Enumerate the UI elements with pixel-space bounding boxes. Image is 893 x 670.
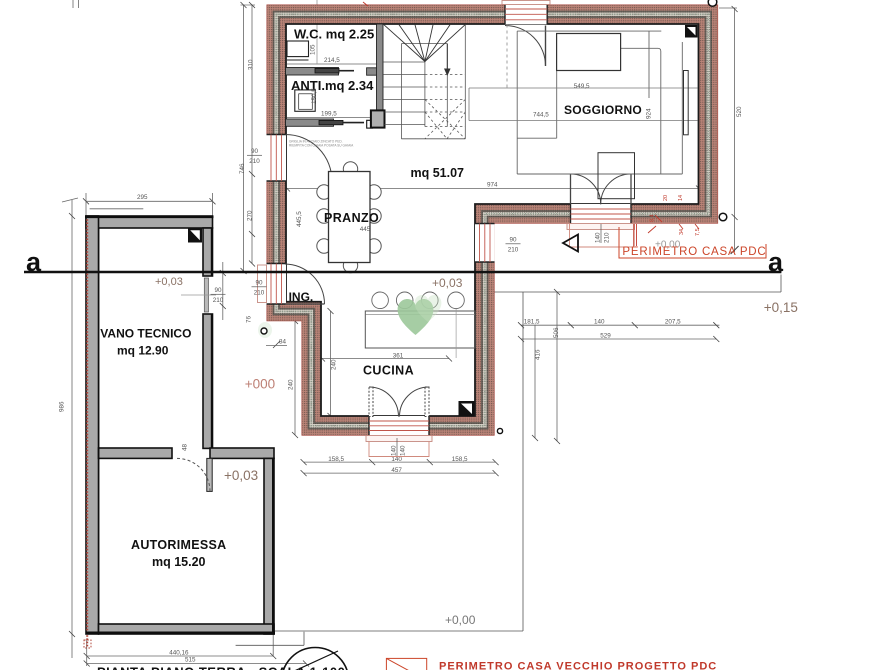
svg-text:7,5: 7,5 — [695, 228, 701, 236]
svg-text:744,5: 744,5 — [533, 111, 549, 118]
svg-text:974: 974 — [487, 182, 498, 189]
svg-text:520: 520 — [736, 106, 743, 117]
svg-text:199,5: 199,5 — [321, 111, 337, 118]
svg-text:158,5: 158,5 — [328, 456, 344, 463]
svg-text:140: 140 — [595, 232, 602, 243]
svg-text:210: 210 — [508, 247, 519, 254]
svg-text:140: 140 — [391, 445, 398, 456]
svg-text:445: 445 — [360, 226, 371, 233]
svg-text:240: 240 — [288, 379, 295, 390]
svg-text:457: 457 — [391, 467, 402, 474]
svg-text:34: 34 — [679, 229, 685, 235]
svg-text:924: 924 — [646, 108, 653, 119]
svg-text:PRANZO: PRANZO — [324, 211, 379, 225]
svg-text:986: 986 — [59, 401, 66, 412]
svg-text:210: 210 — [249, 158, 260, 165]
svg-text:+0,03: +0,03 — [432, 276, 463, 290]
svg-text:90: 90 — [251, 148, 259, 155]
svg-text:207,5: 207,5 — [665, 319, 681, 326]
svg-text:AUTORIMESSA: AUTORIMESSA — [131, 538, 226, 552]
svg-text:150,5: 150,5 — [311, 88, 318, 104]
svg-text:W.C. mq 2.25: W.C. mq 2.25 — [294, 27, 374, 42]
svg-text:48: 48 — [182, 443, 189, 451]
svg-text:140: 140 — [594, 319, 605, 326]
svg-text:746: 746 — [239, 163, 246, 174]
svg-text:+0,03: +0,03 — [155, 276, 183, 288]
svg-text:CUCINA: CUCINA — [363, 363, 414, 377]
svg-text:549,5: 549,5 — [574, 83, 590, 90]
svg-text:a: a — [768, 247, 784, 277]
svg-text:210: 210 — [254, 290, 265, 297]
svg-text:515: 515 — [185, 657, 196, 664]
svg-text:506: 506 — [553, 327, 560, 338]
svg-text:210: 210 — [604, 232, 611, 243]
svg-text:445,5: 445,5 — [296, 211, 303, 227]
svg-text:181,5: 181,5 — [524, 319, 540, 326]
svg-text:90: 90 — [255, 280, 263, 287]
svg-text:416: 416 — [535, 349, 542, 360]
svg-text:mq 51.07: mq 51.07 — [411, 166, 465, 180]
svg-text:SOGGIORNO: SOGGIORNO — [564, 103, 642, 117]
svg-text:210: 210 — [213, 297, 224, 304]
svg-text:529: 529 — [600, 333, 611, 340]
svg-text:PERIMETRO CASA VECCHIO PROGETT: PERIMETRO CASA VECCHIO PROGETTO PDC — [439, 661, 717, 670]
svg-text:90: 90 — [509, 237, 517, 244]
svg-text:ING.: ING. — [289, 290, 314, 304]
svg-text:ANTI.mq 2.34: ANTI.mq 2.34 — [291, 78, 374, 93]
svg-text:mq 12.90: mq 12.90 — [117, 343, 169, 357]
svg-text:214,5: 214,5 — [324, 57, 340, 64]
svg-text:+0,00: +0,00 — [445, 613, 476, 627]
svg-text:VANO TECNICO: VANO TECNICO — [100, 327, 191, 341]
svg-text:140: 140 — [400, 445, 407, 456]
svg-text:310: 310 — [248, 59, 255, 70]
svg-text:mq 15.20: mq 15.20 — [152, 555, 206, 569]
svg-text:+0,03: +0,03 — [224, 468, 258, 483]
svg-text:+000: +000 — [245, 377, 275, 392]
svg-text:158,5: 158,5 — [452, 456, 468, 463]
svg-text:440,16: 440,16 — [169, 650, 189, 657]
svg-text:361: 361 — [393, 353, 404, 360]
svg-text:20: 20 — [663, 195, 669, 201]
svg-text:a: a — [26, 247, 42, 277]
svg-text:240: 240 — [331, 359, 338, 370]
svg-text:14: 14 — [678, 195, 684, 201]
svg-text:90: 90 — [214, 287, 222, 294]
svg-text:PIANTA PIANO TERRA - SCALA 1:1: PIANTA PIANO TERRA - SCALA 1:100 — [97, 665, 345, 670]
svg-text:+0,15: +0,15 — [764, 300, 798, 315]
svg-text:76: 76 — [246, 315, 253, 323]
svg-text:105: 105 — [310, 44, 317, 55]
svg-text:RIEMPITA CON GHIAIA POSATA SU: RIEMPITA CON GHIAIA POSATA SU GHIAIA — [289, 144, 354, 148]
svg-text:270: 270 — [247, 210, 254, 221]
svg-text:PERIMETRO CASA PDC: PERIMETRO CASA PDC — [622, 246, 766, 258]
svg-text:8,4: 8,4 — [650, 214, 656, 222]
svg-text:295: 295 — [137, 194, 148, 201]
svg-text:84: 84 — [279, 339, 287, 346]
